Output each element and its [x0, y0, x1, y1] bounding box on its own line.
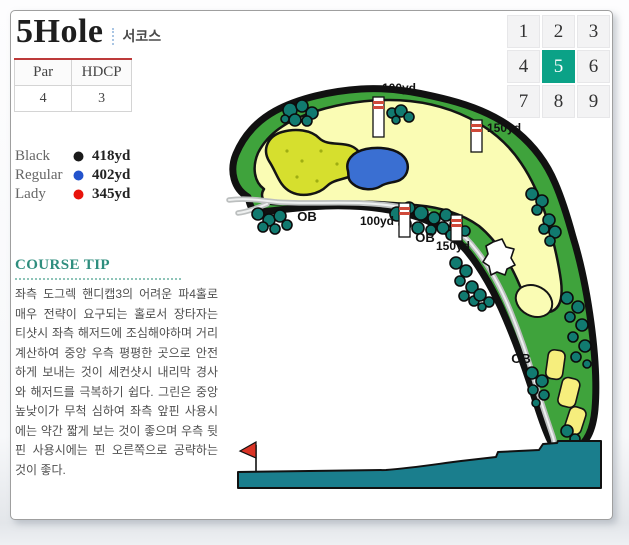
- ob-label-bottom: OB: [511, 351, 531, 366]
- green-speckle: [295, 175, 298, 178]
- svg-text:150yd: 150yd: [436, 239, 470, 253]
- ob-label-mid: OB: [415, 230, 435, 245]
- hole-map-illustration: 100yd 150yd 100yd 150yd OB OB OB: [11, 11, 612, 519]
- svg-text:100yd: 100yd: [360, 214, 394, 228]
- green-speckle: [319, 149, 322, 152]
- svg-text:100yd: 100yd: [382, 81, 416, 95]
- green-speckle: [335, 162, 338, 165]
- green-speckle: [285, 149, 288, 152]
- tee-box: [545, 349, 566, 380]
- green-speckle: [315, 179, 318, 182]
- pin-flag-icon: [240, 442, 256, 472]
- green-speckle: [300, 159, 303, 162]
- hole-info-window: 5Hole 서코스 Par HDCP 4 3 Black 418yd Regul…: [10, 10, 613, 520]
- elevation-profile: [238, 441, 601, 488]
- ob-label-left: OB: [297, 209, 317, 224]
- svg-text:150yd: 150yd: [487, 121, 521, 135]
